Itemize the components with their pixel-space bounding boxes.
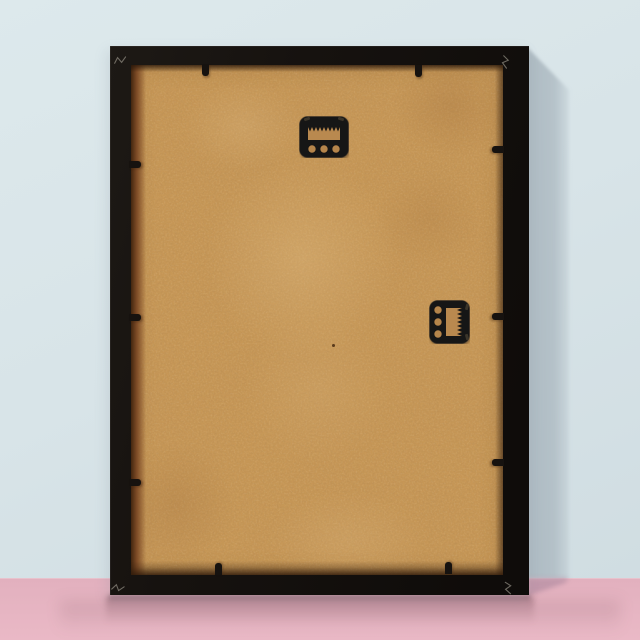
frame-corner-joint-mark: [110, 577, 127, 598]
frame-corner-joint-mark: [498, 580, 518, 597]
product-photo-stage: [0, 0, 640, 640]
retainer-tab-left: [129, 314, 141, 321]
retainer-tab-bottom: [445, 562, 452, 574]
frame-edge-highlight: [110, 46, 111, 595]
retainer-tab-left: [129, 479, 141, 486]
retainer-tab-bottom: [215, 563, 222, 575]
retainer-tab-top: [415, 65, 422, 77]
retainer-tab-right: [492, 146, 504, 153]
backing-speck: [332, 344, 335, 347]
sawtooth-hanger-top: [299, 116, 349, 158]
sawtooth-hanger-side: [429, 300, 470, 344]
retainer-tab-left: [129, 161, 141, 168]
frame-edge-highlight: [110, 46, 529, 47]
retainer-tab-right: [492, 459, 504, 466]
retainer-tab-right: [492, 313, 504, 320]
retainer-tab-top: [202, 64, 209, 76]
frame-corner-joint-mark: [495, 54, 515, 71]
